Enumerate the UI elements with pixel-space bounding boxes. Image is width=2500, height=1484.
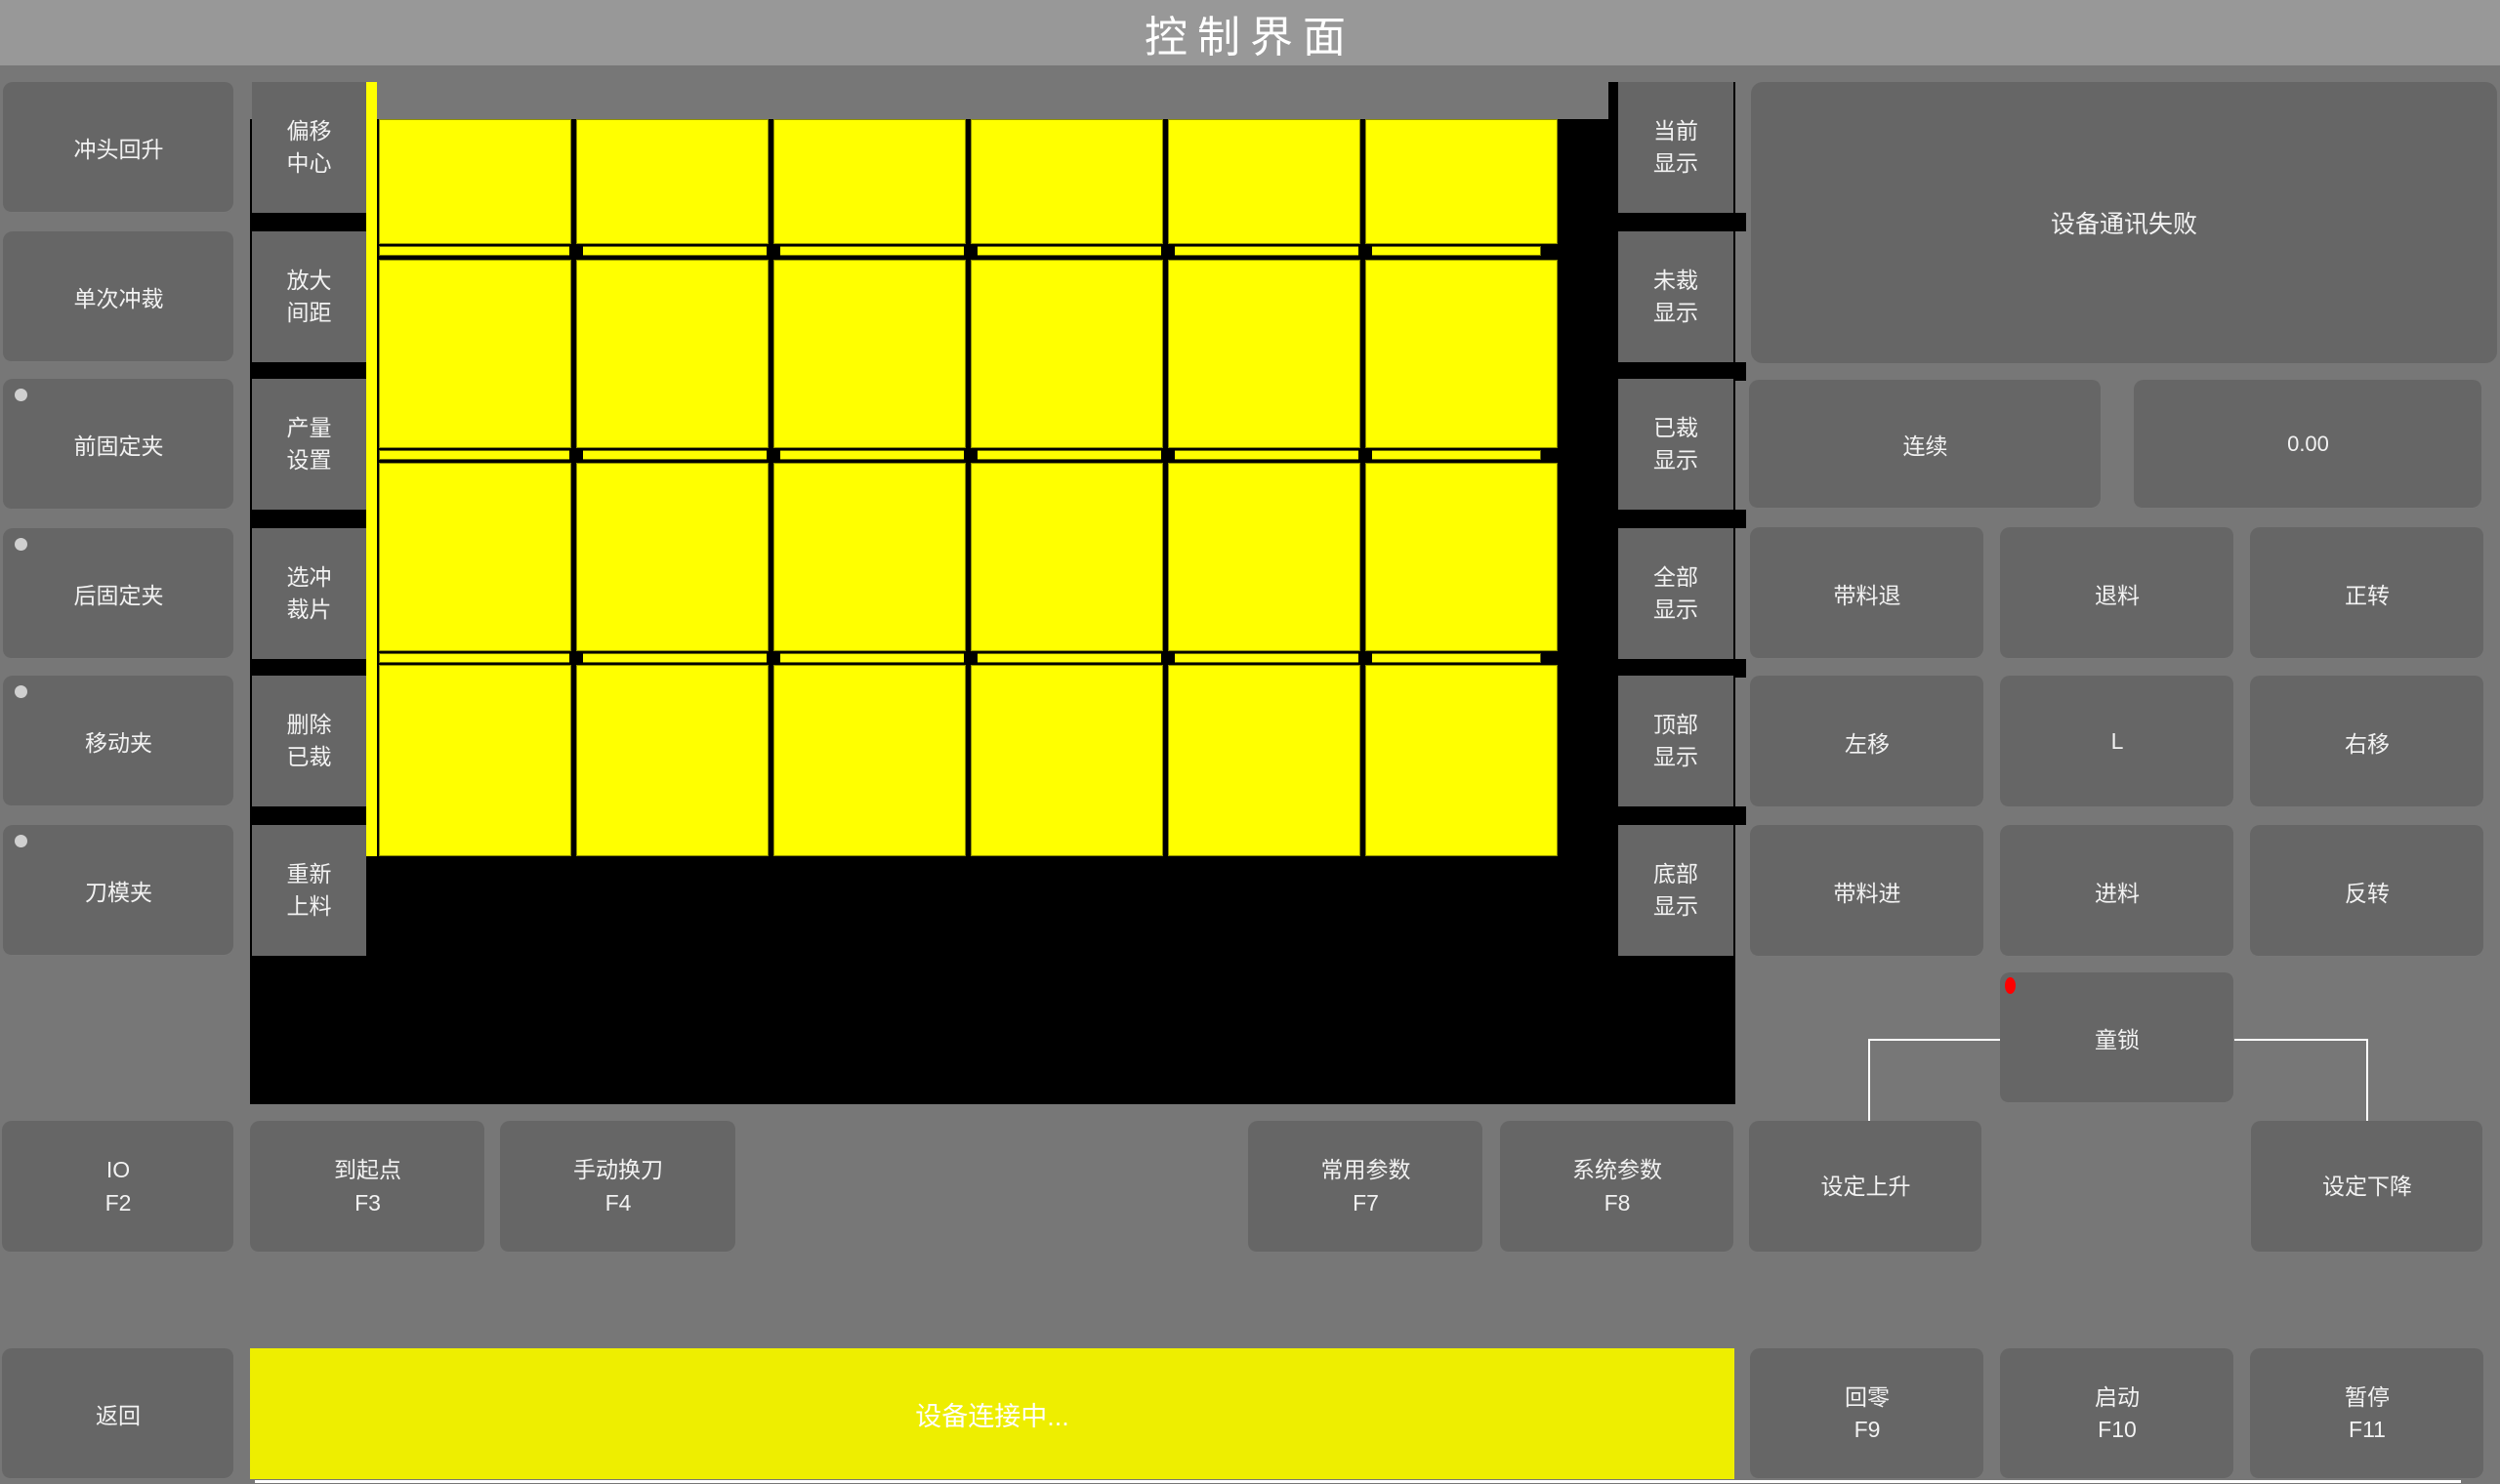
front-fixed-clamp-button[interactable]: 前固定夹 [3, 379, 234, 510]
sheet-piece[interactable] [1168, 665, 1360, 856]
strip-notch [1358, 448, 1372, 462]
strip-notch [1161, 448, 1175, 462]
canvas-edge-nub [1735, 659, 1746, 678]
bracket-line-right-vertical [2366, 1039, 2368, 1121]
move-right-button[interactable]: 右移 [2250, 676, 2484, 807]
connection-status-bar: 设备连接中... [250, 1348, 1734, 1479]
bracket-line-right-horizontal [2234, 1039, 2366, 1041]
single-punch-button[interactable]: 单次冲裁 [3, 231, 234, 362]
connection-status-text: 设备连接中... [915, 1395, 1069, 1433]
strip-notch [569, 651, 583, 665]
move-left-button[interactable]: 左移 [1750, 676, 1984, 807]
bottom-edge-line [255, 1480, 2461, 1483]
canvas-edge-nub [1735, 510, 1746, 528]
sheet-piece[interactable] [1365, 260, 1558, 448]
bottom-display-button[interactable]: 底部显示 [1618, 825, 1733, 956]
canvas-edge-nub [1735, 362, 1746, 381]
sheet-canvas: 偏移中心放大间距产量设置选冲裁片删除已裁重新上料当前显示未裁显示已裁显示全部显示… [250, 82, 1735, 1104]
common-params-button[interactable]: 常用参数F7 [1248, 1121, 1483, 1253]
sheet-piece[interactable] [379, 665, 571, 856]
strip-notch [1358, 651, 1372, 665]
sheet-piece[interactable] [576, 463, 769, 651]
to-start-point-button[interactable]: 到起点F3 [250, 1121, 485, 1253]
canvas-edge-nub [1735, 806, 1746, 825]
enlarge-spacing-button[interactable]: 放大间距 [252, 231, 366, 362]
sheet-piece[interactable] [1168, 119, 1360, 244]
strip-notch [964, 448, 978, 462]
clamp-indicator-icon [15, 538, 27, 551]
system-params-button[interactable]: 系统参数F8 [1500, 1121, 1734, 1253]
rear-fixed-clamp-button[interactable]: 后固定夹 [3, 528, 234, 659]
sheet-piece[interactable] [576, 260, 769, 448]
punch-return-up-button[interactable]: 冲头回升 [3, 82, 234, 213]
sheet-piece[interactable] [379, 260, 571, 448]
clamp-indicator-icon [15, 389, 27, 401]
continuous-mode-button[interactable]: 连续 [1749, 380, 2102, 509]
strip-notch [767, 651, 780, 665]
unload-material-button[interactable]: 退料 [2000, 527, 2234, 659]
die-clamp-button[interactable]: 刀模夹 [3, 825, 234, 956]
all-display-button[interactable]: 全部显示 [1618, 528, 1733, 659]
sheet-piece[interactable] [1168, 260, 1360, 448]
strip-notch [569, 244, 583, 258]
sheet-piece[interactable] [773, 463, 966, 651]
set-rise-button[interactable]: 设定上升 [1749, 1121, 1982, 1253]
current-display-button[interactable]: 当前显示 [1618, 82, 1733, 213]
sheet-piece[interactable] [773, 260, 966, 448]
sheet-top-band [250, 82, 1608, 119]
belt-feed-back-button[interactable]: 带料退 [1750, 527, 1984, 659]
strip-notch [1161, 244, 1175, 258]
moving-clamp-button[interactable]: 移动夹 [3, 676, 234, 806]
belt-feed-forward-button[interactable]: 带料进 [1750, 825, 1984, 957]
child-lock-button[interactable]: 童锁 [2000, 972, 2234, 1103]
strip-notch [1161, 651, 1175, 665]
clamp-indicator-icon [15, 685, 27, 698]
sheet-piece[interactable] [1168, 463, 1360, 651]
sheet-piece[interactable] [1365, 119, 1558, 244]
page-title: 控制界面 [1145, 2, 1355, 64]
manual-tool-change-button[interactable]: 手动换刀F4 [500, 1121, 736, 1253]
sheet-piece[interactable] [576, 119, 769, 244]
delete-cut-button[interactable]: 删除已裁 [252, 676, 366, 806]
feed-material-button[interactable]: 进料 [2000, 825, 2234, 957]
sheet-piece[interactable] [576, 665, 769, 856]
uncut-display-button[interactable]: 未裁显示 [1618, 231, 1733, 362]
sheet-piece[interactable] [1365, 463, 1558, 651]
cut-display-button[interactable]: 已裁显示 [1618, 379, 1733, 510]
sheet-piece[interactable] [379, 119, 571, 244]
strip-notch [767, 244, 780, 258]
io-button[interactable]: IOF2 [2, 1121, 234, 1253]
strip-notch [964, 651, 978, 665]
strip-notch [964, 244, 978, 258]
sheet-piece[interactable] [1365, 665, 1558, 856]
sheet-piece[interactable] [773, 119, 966, 244]
home-zero-button[interactable]: 回零F9 [1750, 1348, 1984, 1479]
device-status-text: 设备通讯失败 [2051, 205, 2197, 240]
back-button[interactable]: 返回 [2, 1348, 234, 1479]
set-fall-button[interactable]: 设定下降 [2251, 1121, 2483, 1253]
select-piece-button[interactable]: 选冲裁片 [252, 528, 366, 659]
pause-button[interactable]: 暂停F11 [2250, 1348, 2484, 1479]
top-display-button[interactable]: 顶部显示 [1618, 676, 1733, 806]
sheet-left-strip [366, 82, 377, 856]
clamp-indicator-icon [15, 835, 27, 847]
l-button[interactable]: L [2000, 676, 2234, 807]
strip-notch [569, 448, 583, 462]
sheet-piece[interactable] [971, 463, 1163, 651]
sheet-piece[interactable] [971, 119, 1163, 244]
strip-notch [1358, 244, 1372, 258]
start-button[interactable]: 启动F10 [2000, 1348, 2234, 1479]
forward-rotation-button[interactable]: 正转 [2250, 527, 2484, 659]
alert-dot-icon [2005, 977, 2016, 994]
sheet-piece[interactable] [971, 665, 1163, 856]
value-display[interactable]: 0.00 [2134, 380, 2482, 509]
sheet-piece[interactable] [971, 260, 1163, 448]
output-setting-button[interactable]: 产量设置 [252, 379, 366, 510]
canvas-edge-nub [1735, 213, 1746, 231]
device-status-box: 设备通讯失败 [1751, 82, 2497, 363]
bracket-line-left-horizontal [1868, 1039, 2000, 1041]
sheet-piece[interactable] [379, 463, 571, 651]
sheet-piece[interactable] [773, 665, 966, 856]
control-interface: 控制界面 偏移中心放大间距产量设置选冲裁片删除已裁重新上料当前显示未裁显示已裁显… [0, 0, 2500, 1484]
reverse-rotation-button[interactable]: 反转 [2250, 825, 2484, 957]
bracket-line-left-vertical [1868, 1039, 1870, 1121]
title-bar: 控制界面 [0, 0, 2500, 65]
strip-notch [767, 448, 780, 462]
reload-material-button[interactable]: 重新上料 [252, 825, 366, 956]
offset-center-button[interactable]: 偏移中心 [252, 82, 366, 213]
